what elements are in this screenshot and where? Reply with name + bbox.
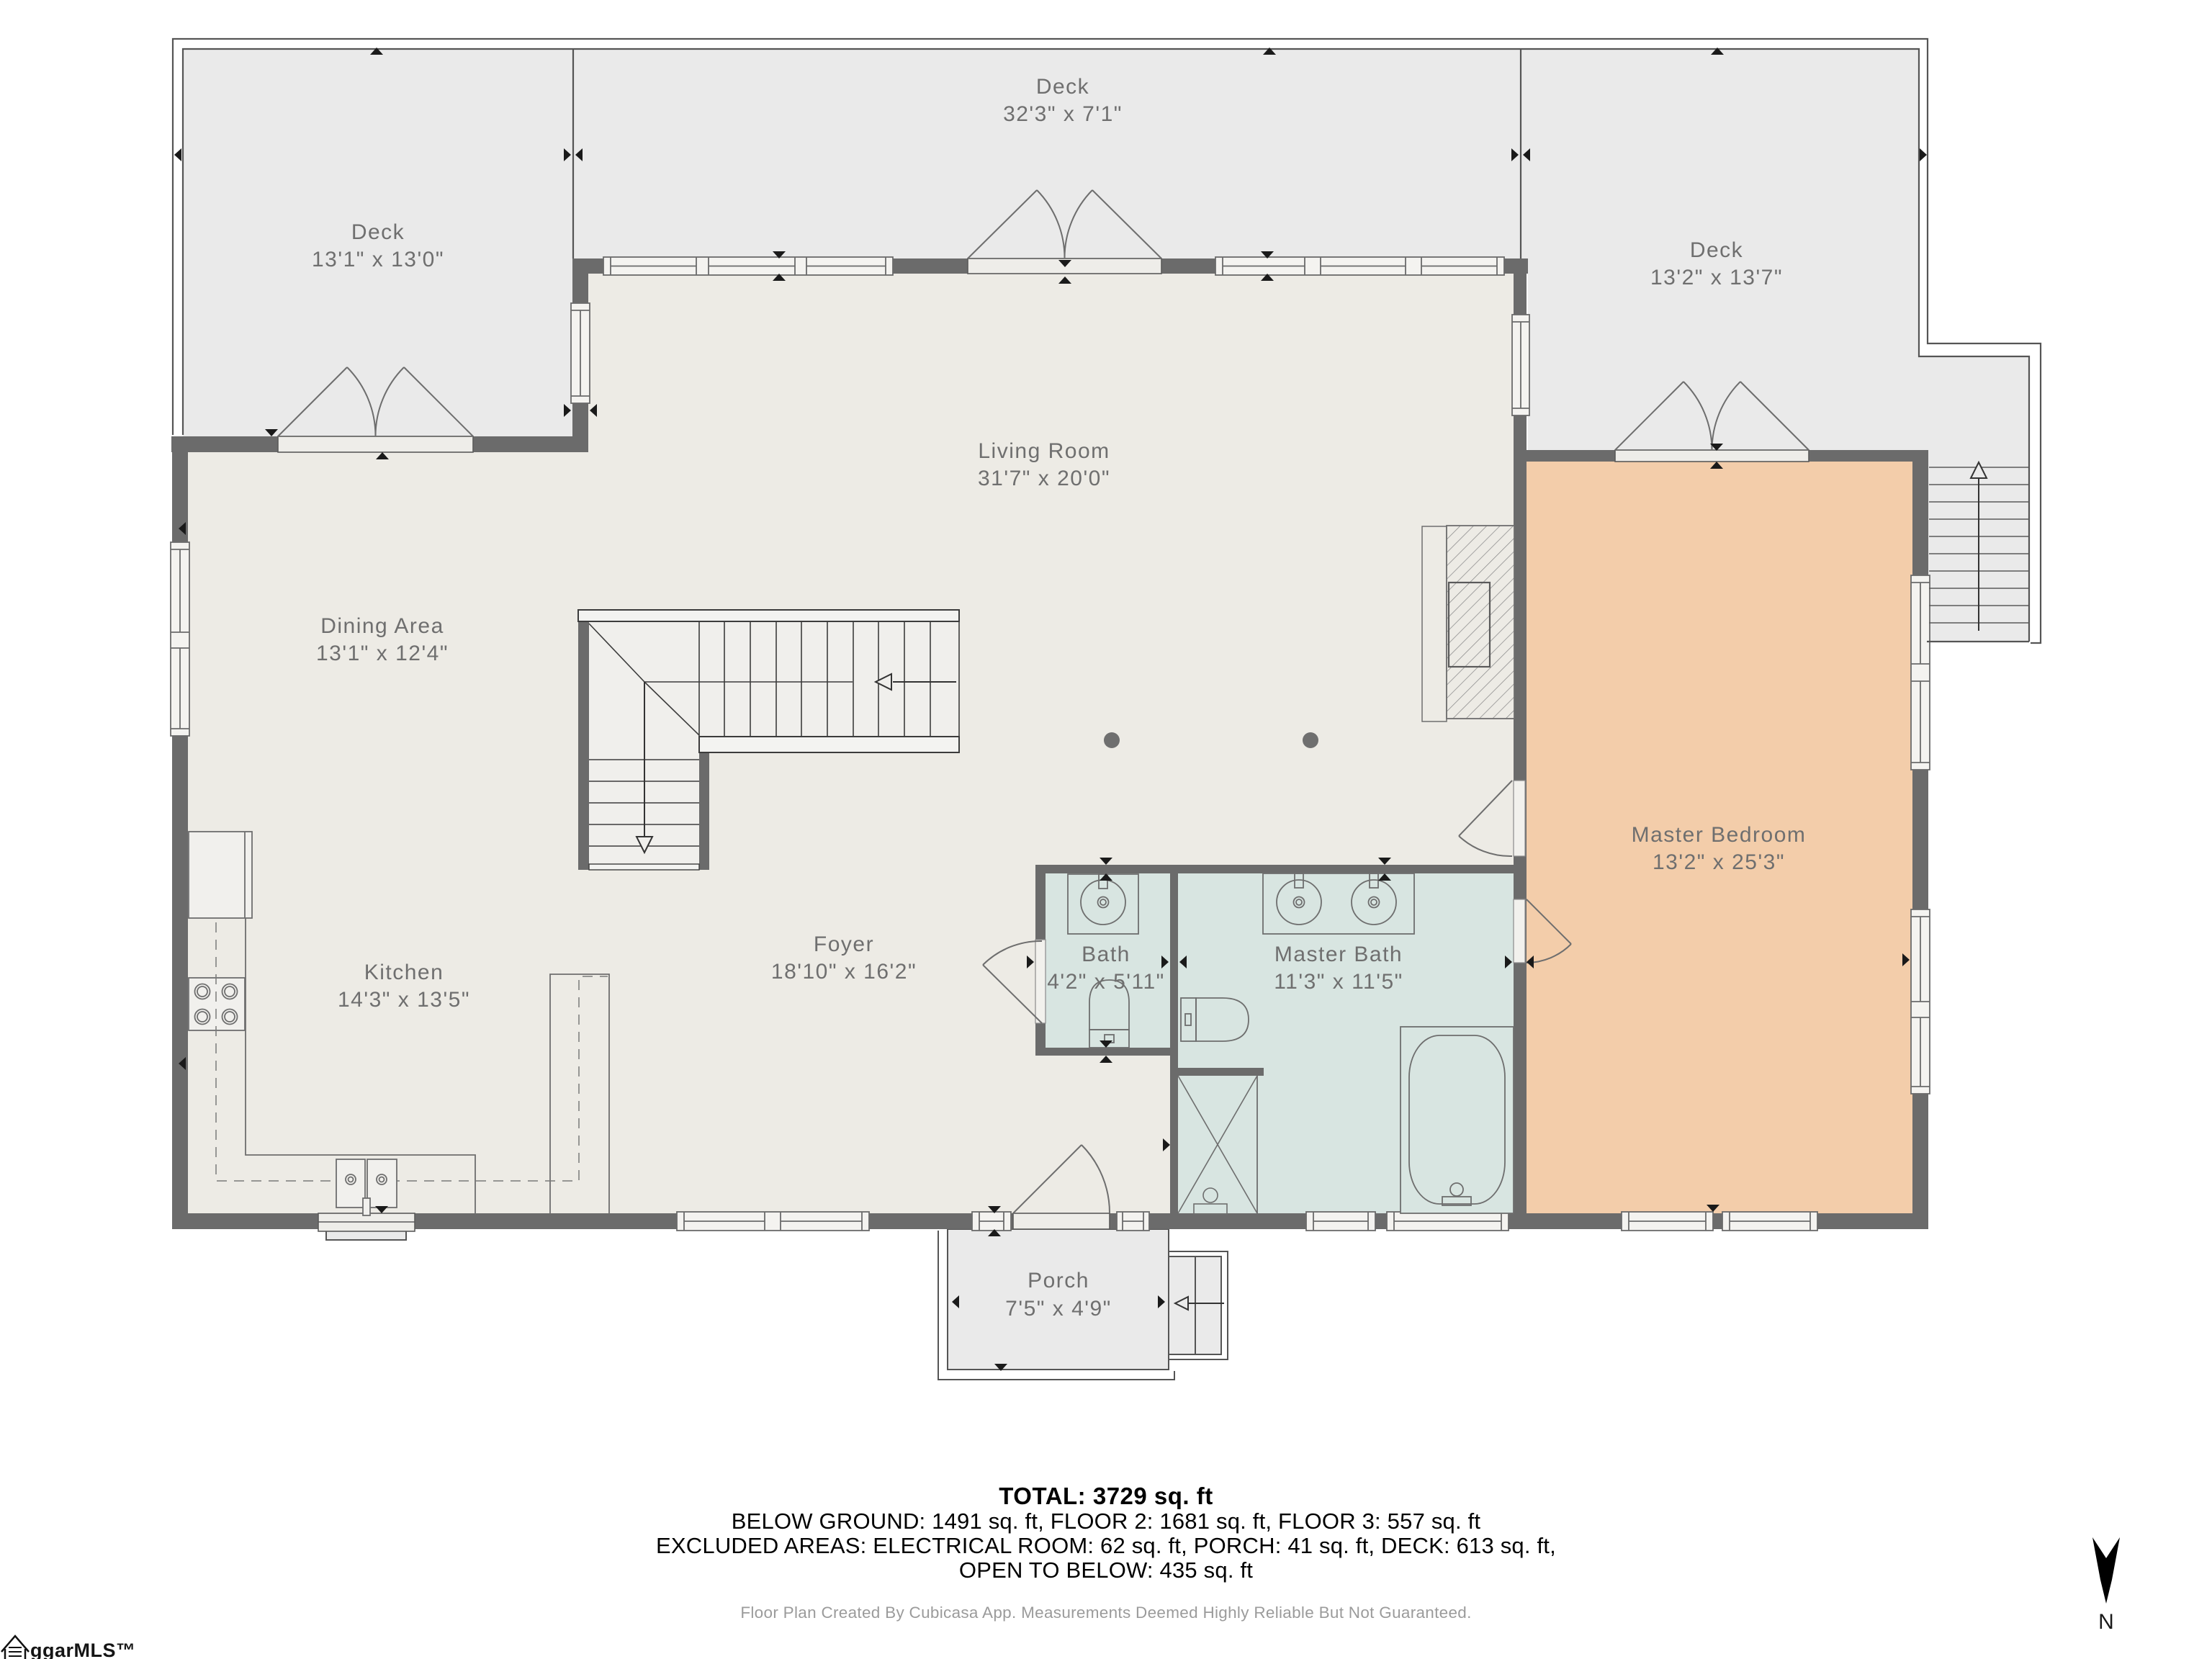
svg-text:ggarMLS™: ggarMLS™ (30, 1640, 136, 1659)
svg-text:Deck: Deck (351, 220, 405, 244)
svg-text:Deck: Deck (1690, 238, 1743, 262)
svg-text:Foyer: Foyer (814, 932, 874, 956)
svg-text:11'3" x 11'5": 11'3" x 11'5" (1274, 970, 1403, 994)
svg-text:N: N (2098, 1610, 2114, 1634)
svg-text:Dining Area: Dining Area (320, 614, 444, 638)
svg-text:32'3" x 7'1": 32'3" x 7'1" (1003, 102, 1123, 126)
svg-text:13'1" x 13'0": 13'1" x 13'0" (312, 248, 444, 271)
svg-text:BELOW GROUND: 1491 sq. ft, FLO: BELOW GROUND: 1491 sq. ft, FLOOR 2: 1681… (732, 1509, 1481, 1534)
svg-text:OPEN TO BELOW: 435 sq. ft: OPEN TO BELOW: 435 sq. ft (959, 1557, 1253, 1583)
svg-text:Master Bath: Master Bath (1274, 943, 1403, 966)
svg-text:7'5" x 4'9": 7'5" x 4'9" (1005, 1297, 1112, 1321)
svg-text:18'10" x 16'2": 18'10" x 16'2" (771, 960, 917, 984)
svg-text:Kitchen: Kitchen (364, 961, 444, 984)
svg-text:TOTAL: 3729 sq. ft: TOTAL: 3729 sq. ft (999, 1483, 1213, 1509)
svg-text:Floor Plan Created By Cubicasa: Floor Plan Created By Cubicasa App. Meas… (740, 1604, 1471, 1622)
svg-text:Master Bedroom: Master Bedroom (1632, 823, 1807, 847)
svg-text:Porch: Porch (1028, 1269, 1089, 1292)
svg-text:13'2" x 13'7": 13'2" x 13'7" (1650, 266, 1783, 289)
svg-text:31'7" x 20'0": 31'7" x 20'0" (978, 467, 1110, 490)
svg-text:14'3" x 13'5": 14'3" x 13'5" (338, 988, 470, 1012)
svg-text:13'1" x 12'4": 13'1" x 12'4" (316, 642, 449, 665)
svg-text:Bath: Bath (1082, 943, 1130, 966)
svg-text:EXCLUDED AREAS: ELECTRICAL ROO: EXCLUDED AREAS: ELECTRICAL ROOM: 62 sq. … (656, 1533, 1556, 1558)
svg-text:13'2" x 25'3": 13'2" x 25'3" (1653, 850, 1785, 874)
svg-text:Living Room: Living Room (978, 439, 1110, 463)
svg-text:4'2" x 5'11": 4'2" x 5'11" (1047, 970, 1165, 994)
svg-text:Deck: Deck (1036, 75, 1089, 99)
